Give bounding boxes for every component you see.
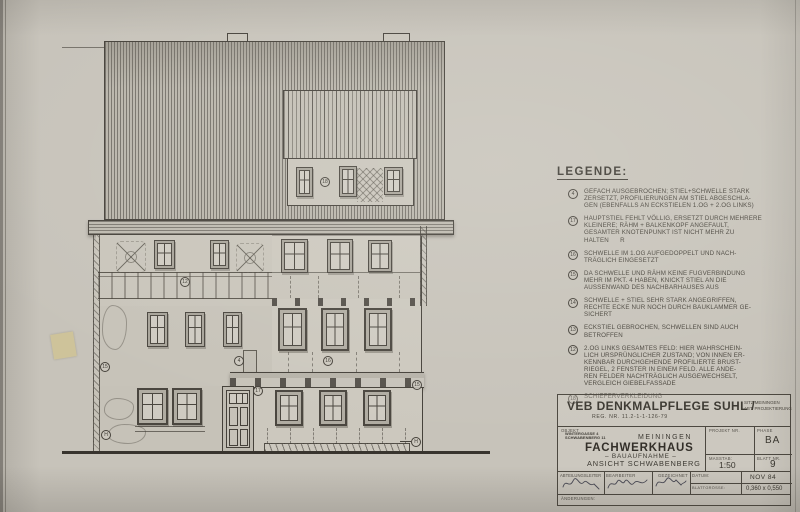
door-panel [240,407,248,426]
blattgroesse-label: BLATTGRÖSSE: [692,485,725,490]
phase-label: PHASE [757,428,773,433]
drawing-marker: H [101,430,111,440]
legend: LEGENDE: 4 GEFACH AUSGEBROCHEN; STIEL+SC… [557,162,799,410]
plain-band [272,272,420,299]
ground-floor-window [172,388,202,425]
drawing-marker: 16 [323,356,333,366]
titleblock-line [604,471,605,494]
window-glass [368,395,386,421]
eaves-cornice [88,220,454,235]
dormer-window [339,166,357,197]
legend-item: 4 GEFACH AUSGEBROCHEN; STIEL+SCHWELLE ST… [557,188,799,209]
object-subtitle: ANSICHT SCHWABENBERG [587,459,701,468]
signature-gezeichnet [654,474,688,490]
datum-label: DATUM: [692,473,710,478]
door-panel [240,429,248,446]
timber-post-line [356,352,357,372]
drawing-marker: 17 [253,386,263,396]
ground-floor-window [275,390,303,426]
first-floor-window [185,312,205,347]
door-panel [229,407,238,426]
corner-downpipe [420,226,427,306]
drawing-marker: 15 [412,380,422,390]
window-glass [284,242,305,270]
legend-item-number: 12 [568,345,578,355]
ground-floor-window [363,390,391,426]
titleblock-line [558,426,790,427]
ground-floor-window [319,390,347,426]
second-floor-window [368,240,392,272]
ground-line [62,451,490,454]
sheet-left-edge-line [5,0,6,512]
timber-post-line [290,276,291,298]
door-panel [229,429,238,446]
second-floor-window [327,239,353,273]
window-glass [324,395,342,421]
window-glass [150,315,165,344]
door-transom [229,393,248,404]
timber-post-line [336,428,337,444]
legend-item: 16 SCHWELLE IM 1.OG AUFGEDOPPELT UND NAC… [557,250,799,264]
phase-value: BA [765,435,780,446]
blattgroesse-value: 0,360 x 0,550 [746,486,782,492]
second-floor-window [210,240,229,269]
titleblock-line [741,471,742,494]
window-glass [371,243,389,269]
drawing-marker: 18 [320,177,330,187]
window-glass [213,243,226,266]
company-department: ABT. PROJEKTIERUNG [744,406,792,411]
timber-post-line [399,352,400,372]
ground-floor-window [137,388,168,425]
blatt-label: BLATT NR. [757,456,781,461]
door-leaf [226,390,250,448]
first-floor-window-large [364,308,392,351]
drawing-marker: H [411,437,421,447]
titleblock-line [558,471,790,472]
dormer-window [384,167,403,195]
timber-post-line [382,428,383,444]
marker-leader-line [400,441,411,442]
legend-item-number: 14 [568,298,578,308]
scanned-drawing-sheet: { "legend": { "title": "LEGENDE:", "item… [0,0,800,512]
blatt-value: 9 [770,459,776,470]
legend-item-text: ECKSTIEL GEBROCHEN, SCHWELLEN SIND AUCH … [584,324,739,338]
legend-item-text: GEFACH AUSGEBROCHEN; STIEL+SCHWELLE STAR… [584,188,754,209]
dormer-window [296,167,313,197]
chimney-right [383,33,410,42]
legend-item-text: DA SCHWELLE UND RÄHM KEINE FUGVERBINDUNG… [584,270,745,291]
titleblock-line [558,494,790,495]
window-glass [299,170,310,194]
company-name: VEB DENKMALPFLEGE SUHL / [567,399,755,413]
first-floor-window [223,312,242,347]
legend-item-number: 4 [568,189,578,199]
carved-ornament [236,243,264,273]
window-glass [387,170,400,192]
drawing-marker: 15 [100,362,110,372]
timber-post-line [358,276,359,298]
second-floor-window [154,240,175,269]
window-glass [226,315,239,344]
dormer-slate-patch [357,168,383,202]
window-glass [157,243,172,266]
first-floor-window [147,312,168,347]
legend-item-number: 17 [568,216,578,226]
window-glass [283,313,302,346]
sheet-left-shadow [0,0,3,512]
dormer-roof [283,90,417,159]
projekt-label: PROJEKT NR. [709,428,740,433]
address-stamp: WINTERGASSE 4 SCHWABENBERG 11 [565,432,606,441]
chimney-left [227,33,248,42]
titleblock-line [652,471,653,494]
legend-title: LEGENDE: [557,166,628,180]
window-glass [142,393,163,420]
window-glass [342,169,354,194]
timber-post-line [290,428,291,444]
company-seat: SITZ MEININGEN [744,400,780,405]
legend-item: 17 HAUPTSTIEL FEHLT VÖLLIG, ERSETZT DURC… [557,215,799,243]
legend-item-number: 16 [568,250,578,260]
legend-item-text: SCHWELLE IM 1.OG AUFGEDOPPELT UND NACH- … [584,250,736,264]
legend-item: 12 2.OG LINKS GESAMTES FELD: HIER WAHRSC… [557,345,799,388]
timber-post-line [318,276,319,298]
datum-value: NOV 84 [750,474,776,481]
window-sill-band [135,426,205,432]
titleblock-line [690,471,691,494]
first-floor-window-large [321,308,349,351]
aenderungen-label: ÄNDERUNGEN: [561,496,595,501]
stamp-line: SCHWABENBERG 11 [565,436,606,440]
window-glass [330,242,350,270]
signature-bearbeiter [606,475,650,492]
first-floor-window-large [278,308,307,351]
timber-post-line [267,428,268,444]
titleblock-line [754,426,755,471]
masking-tape [50,331,77,359]
drawing-marker: 4 [234,356,244,366]
timber-post-line [312,352,313,372]
second-floor-window [281,239,308,273]
legend-item: 13 ECKSTIEL GEBROCHEN, SCHWELLEN SIND AU… [557,324,799,338]
titleblock-line [705,426,706,471]
door-bracket [243,350,257,373]
window-glass [280,395,298,421]
legend-item: 15 DA SCHWELLE UND RÄHM KEINE FUGVERBIND… [557,270,799,291]
legend-item-text: SCHWELLE + STIEL SEHR STARK ANGEGRIFFEN,… [584,297,751,318]
ridge-reference-line [62,47,105,48]
legend-item-text: HAUPTSTIEL FEHLT VÖLLIG, ERSETZT DURCH M… [584,215,762,243]
entrance-door [222,386,254,452]
timber-post-line [313,428,314,444]
legend-item-text: 2.OG LINKS GESAMTES FELD: HIER WAHRSCHEI… [584,345,745,388]
timber-post-line [288,352,289,372]
window-glass [177,393,197,420]
masstab-value: 1:50 [719,460,736,470]
timber-post-line [359,428,360,444]
corner-quoin-strip [93,235,100,452]
legend-item: 14 SCHWELLE + STIEL SEHR STARK ANGEGRIFF… [557,297,799,318]
titleblock-line [705,454,792,455]
registration-number: REG. NR. 11.2-1-1-126-79 [592,414,668,420]
window-glass [188,315,202,344]
city-name: MEININGEN [638,434,692,441]
legend-item-number: 15 [568,270,578,280]
drawing-marker: 12 [180,277,190,287]
carved-ornament [116,241,146,273]
signature-abteilungsleiter [560,475,602,492]
window-glass [326,313,344,346]
timber-post-line [399,276,400,298]
legend-item-number: 13 [568,325,578,335]
title-block: VEB DENKMALPFLEGE SUHL / SITZ MEININGEN … [557,394,791,506]
window-glass [369,313,387,346]
